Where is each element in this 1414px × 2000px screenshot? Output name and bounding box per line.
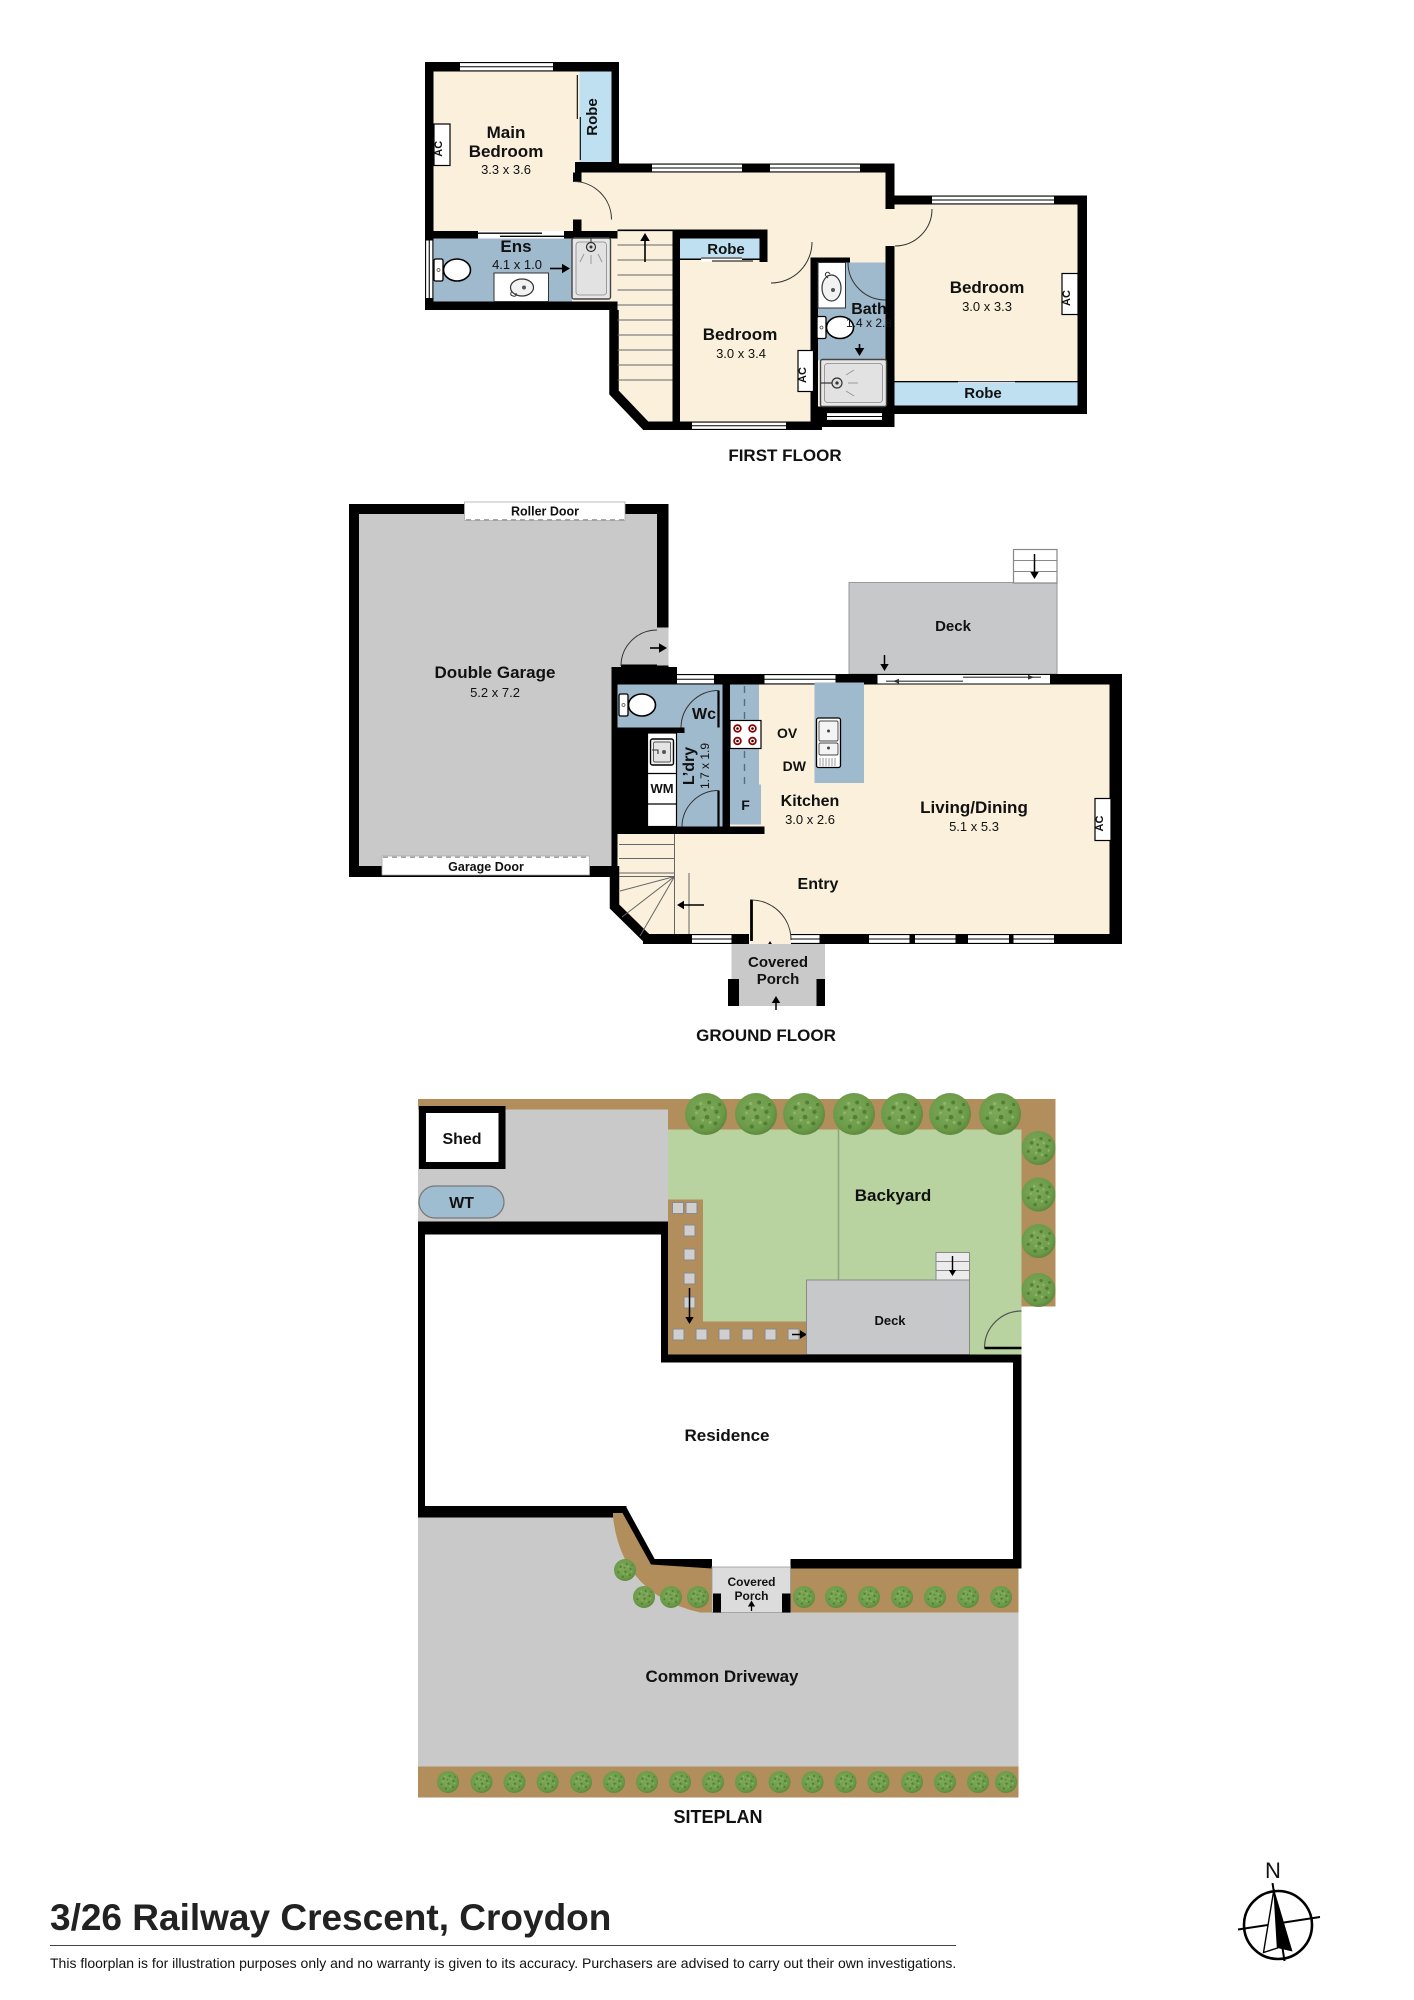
svg-text:3.0 x 3.3: 3.0 x 3.3 [962,299,1012,314]
svg-text:Robe: Robe [964,385,1002,402]
svg-text:OV: OV [777,725,798,741]
svg-text:5.1 x 5.3: 5.1 x 5.3 [949,819,999,834]
svg-text:Porch: Porch [757,971,800,988]
svg-text:Bedroom: Bedroom [469,142,544,161]
svg-text:3.3 x 3.6: 3.3 x 3.6 [481,162,531,177]
svg-text:Garage Door: Garage Door [448,860,524,874]
svg-text:AC: AC [433,141,445,157]
svg-text:Covered: Covered [727,1575,775,1589]
svg-text:1.4 x 2.8: 1.4 x 2.8 [846,316,892,330]
svg-text:F: F [741,797,750,813]
svg-text:Residence: Residence [684,1426,769,1445]
svg-text:3.0 x 2.6: 3.0 x 2.6 [785,812,835,827]
svg-text:Robe: Robe [584,98,601,136]
svg-text:Covered: Covered [748,954,808,971]
svg-text:L’dry: L’dry [681,747,698,785]
svg-text:WT: WT [449,1195,474,1212]
svg-text:3/26 Railway Crescent, Croydon: 3/26 Railway Crescent, Croydon [50,1897,611,1938]
svg-text:AC: AC [1094,816,1106,832]
svg-text:Living/Dining: Living/Dining [920,798,1028,817]
svg-text:Bedroom: Bedroom [950,278,1025,297]
svg-text:Deck: Deck [874,1313,906,1328]
svg-text:Kitchen: Kitchen [781,793,840,810]
svg-text:Wc: Wc [692,706,716,723]
svg-text:Deck: Deck [935,618,972,635]
svg-text:5.2 x 7.2: 5.2 x 7.2 [470,685,520,700]
svg-text:Roller Door: Roller Door [511,505,579,519]
svg-text:AC: AC [1061,290,1073,306]
svg-text:Backyard: Backyard [855,1186,932,1205]
svg-text:SITEPLAN: SITEPLAN [673,1807,762,1827]
svg-text:3.0 x 3.4: 3.0 x 3.4 [716,346,766,361]
svg-text:DW: DW [783,758,807,774]
svg-text:FIRST FLOOR: FIRST FLOOR [728,446,841,465]
svg-text:AC: AC [797,367,809,383]
svg-text:Entry: Entry [798,876,839,893]
svg-text:GROUND FLOOR: GROUND FLOOR [696,1026,836,1045]
svg-text:1.7 x 1.9: 1.7 x 1.9 [698,743,712,789]
svg-text:N: N [1265,1858,1281,1883]
svg-text:This floorplan is for illustra: This floorplan is for illustration purpo… [50,1955,956,1971]
svg-text:Ens: Ens [500,237,531,256]
svg-text:Common Driveway: Common Driveway [645,1667,799,1686]
svg-text:Main: Main [487,123,526,142]
svg-text:Shed: Shed [442,1131,481,1148]
svg-text:4.1 x 1.0: 4.1 x 1.0 [492,257,542,272]
svg-text:Robe: Robe [707,241,745,258]
svg-text:WM: WM [650,781,673,796]
svg-text:Double Garage: Double Garage [435,663,556,682]
svg-text:Bedroom: Bedroom [703,325,778,344]
